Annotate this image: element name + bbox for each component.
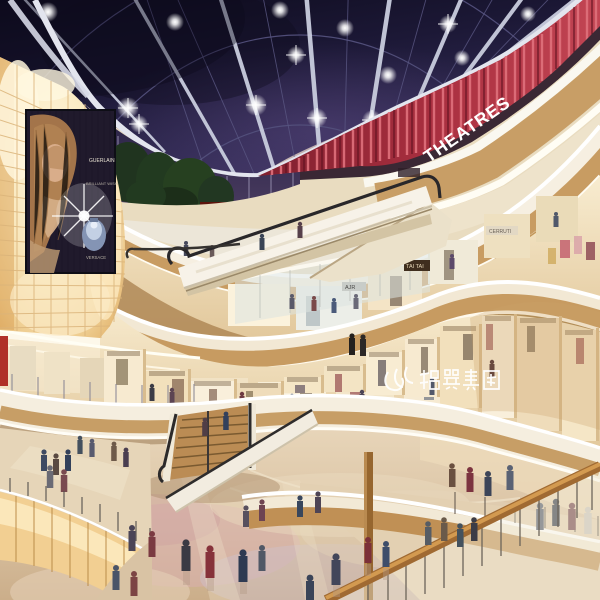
svg-text:AJR: AJR bbox=[345, 285, 355, 291]
svg-text:VERSACE: VERSACE bbox=[86, 255, 106, 260]
svg-text:CERRUTI: CERRUTI bbox=[489, 229, 511, 235]
svg-text:TAI TAI: TAI TAI bbox=[406, 264, 424, 270]
svg-text:GUERLAIN: GUERLAIN bbox=[89, 158, 115, 164]
svg-text:BRILLIANT WISH: BRILLIANT WISH bbox=[86, 181, 118, 186]
